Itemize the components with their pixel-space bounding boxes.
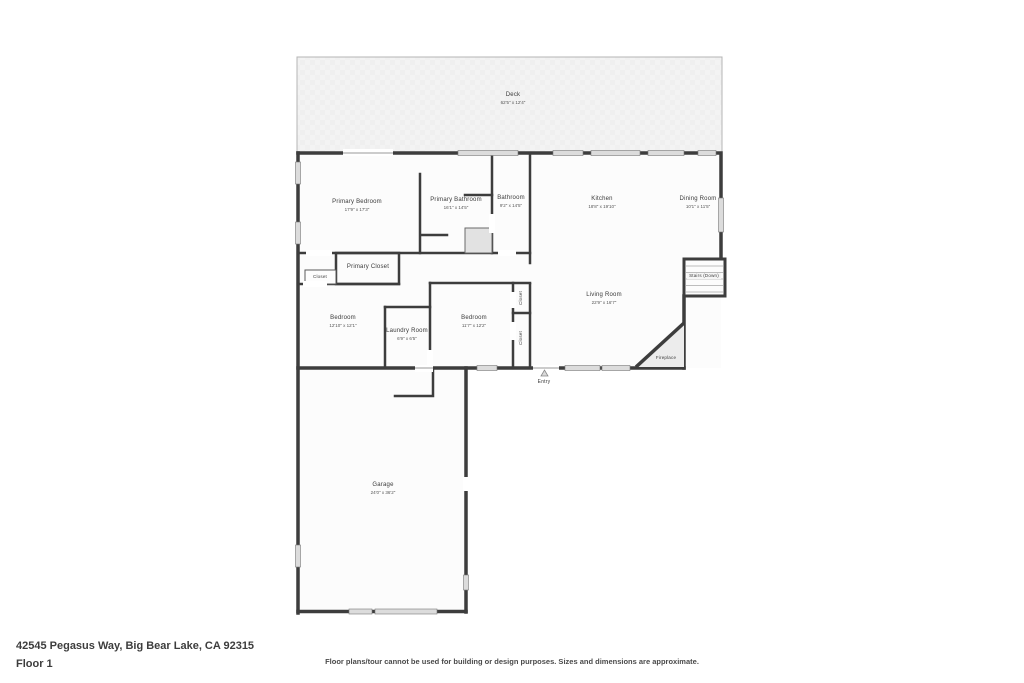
room-label-bedroom-left: Bedroom 12'10" x 12'1" [329,315,356,329]
room-label-closet-upper: Closet [518,291,524,305]
room-label-bathroom: Bathroom 9'2" x 14'5" [497,195,525,209]
room-label-bedroom-right: Bedroom 11'7" x 12'2" [461,315,487,329]
interior-floor [298,153,721,612]
room-label-kitchen: Kitchen 18'8" x 19'10" [588,196,615,210]
property-address: 42545 Pegasus Way, Big Bear Lake, CA 923… [16,640,254,652]
room-label-stairs: Stairs (Down) [687,273,721,279]
room-label-garage: Garage 24'0" x 36'2" [371,482,396,496]
room-label-primary-bathroom: Primary Bathroom 16'1" x 14'5" [430,197,482,211]
shower-stall [465,228,492,253]
room-label-deck: Deck 62'5" x 12'4" [501,92,526,106]
floorplan-page: Deck 62'5" x 12'4" Primary Bedroom 17'9"… [0,0,1024,683]
disclaimer-text: Floor plans/tour cannot be used for buil… [0,657,1024,666]
room-label-dining-room: Dining Room 10'1" x 11'5" [680,196,717,210]
room-label-laundry-room: Laundry Room 6'9" x 6'5" [386,328,428,342]
room-label-hall-closet: Closet [313,274,327,280]
room-label-primary-closet: Primary Closet [347,264,389,272]
room-label-living-room: Living Room 22'9" x 16'7" [586,292,622,306]
room-label-closet-lower: Closet [518,331,524,345]
room-label-fireplace: Fireplace [656,355,676,361]
room-label-entry: Entry [538,379,551,386]
room-label-primary-bedroom: Primary Bedroom 17'9" x 17'3" [332,199,382,213]
